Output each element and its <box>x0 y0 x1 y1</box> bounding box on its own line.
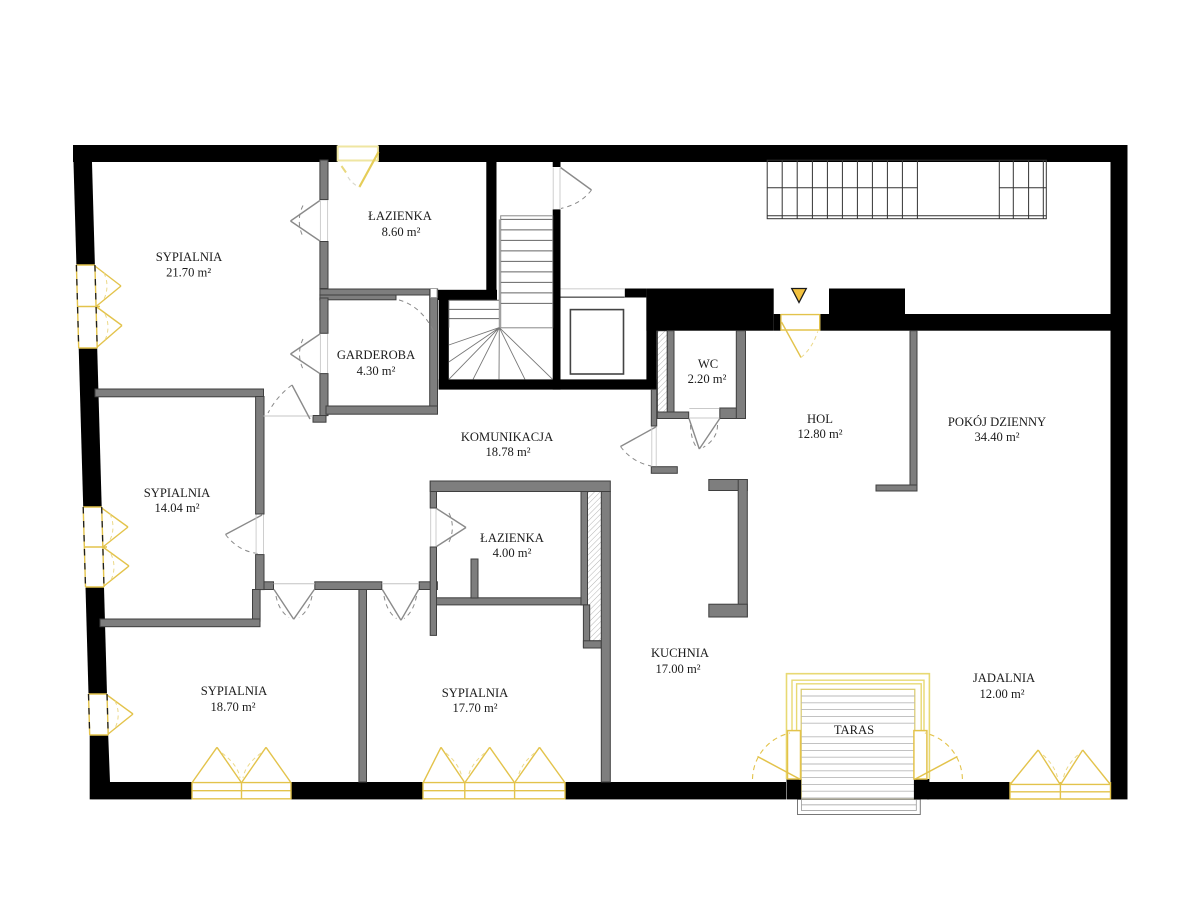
svg-text:2.20 m²: 2.20 m² <box>688 372 727 386</box>
svg-text:POKÓJ DZIENNY: POKÓJ DZIENNY <box>948 415 1046 429</box>
svg-text:SYPIALNIA: SYPIALNIA <box>201 684 267 698</box>
svg-text:21.70 m²: 21.70 m² <box>166 266 211 280</box>
svg-text:14.04 m²: 14.04 m² <box>154 501 199 515</box>
svg-text:4.30 m²: 4.30 m² <box>357 364 396 378</box>
svg-text:ŁAZIENKA: ŁAZIENKA <box>368 209 432 223</box>
svg-text:HOL: HOL <box>807 412 833 426</box>
svg-text:KOMUNIKACJA: KOMUNIKACJA <box>461 430 553 444</box>
svg-text:34.40 m²: 34.40 m² <box>974 430 1019 444</box>
svg-text:18.78 m²: 18.78 m² <box>485 445 530 459</box>
svg-text:ŁAZIENKA: ŁAZIENKA <box>480 531 544 545</box>
svg-text:8.60 m²: 8.60 m² <box>382 225 421 239</box>
svg-text:GARDEROBA: GARDEROBA <box>337 348 415 362</box>
svg-text:WC: WC <box>698 357 718 371</box>
svg-text:SYPIALNIA: SYPIALNIA <box>442 686 508 700</box>
svg-text:TARAS: TARAS <box>834 723 874 737</box>
svg-text:SYPIALNIA: SYPIALNIA <box>156 250 222 264</box>
svg-text:18.70 m²: 18.70 m² <box>210 700 255 714</box>
svg-text:17.00 m²: 17.00 m² <box>655 662 700 676</box>
svg-text:KUCHNIA: KUCHNIA <box>651 646 709 660</box>
svg-text:12.80 m²: 12.80 m² <box>797 427 842 441</box>
svg-text:JADALNIA: JADALNIA <box>973 671 1035 685</box>
svg-text:12.00 m²: 12.00 m² <box>979 687 1024 701</box>
svg-text:17.70 m²: 17.70 m² <box>452 701 497 715</box>
svg-text:SYPIALNIA: SYPIALNIA <box>144 486 210 500</box>
svg-text:4.00 m²: 4.00 m² <box>493 546 532 560</box>
